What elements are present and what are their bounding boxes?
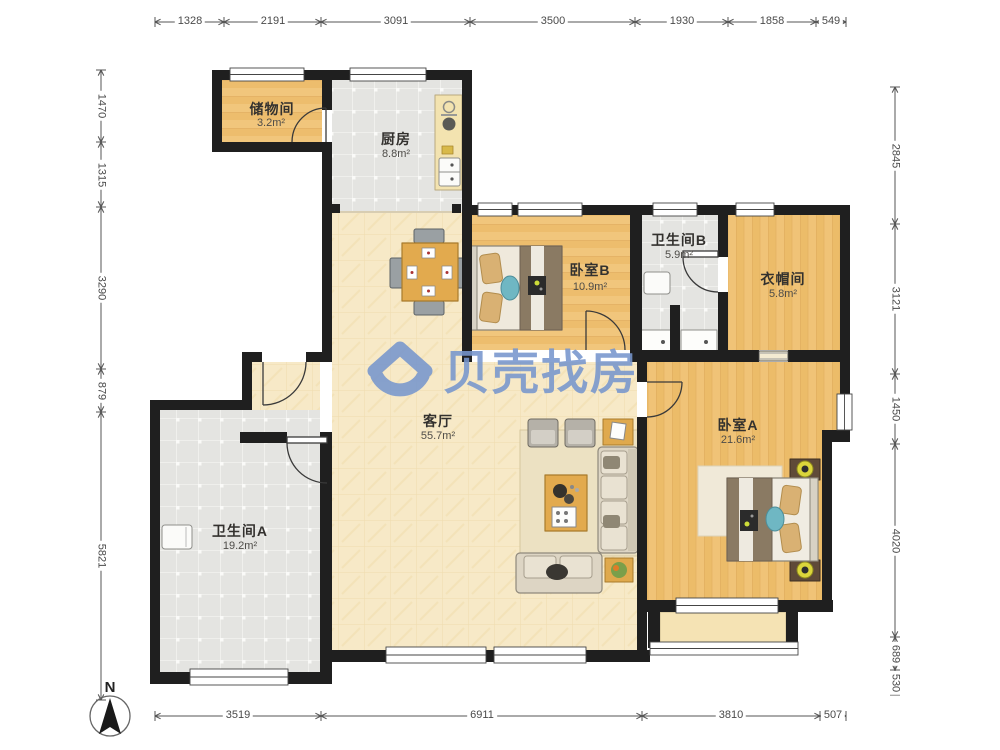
window-bedroom-a-bottom [676, 598, 778, 613]
dim-left-5: 5821 [95, 541, 108, 571]
room-area-kitchen: 8.8m² [382, 148, 410, 160]
dimension-line-right [890, 87, 900, 695]
dim-top-7: 549 [819, 15, 843, 28]
sofa-cushion [603, 456, 620, 469]
bathroom-a-sink [162, 525, 192, 549]
north-arrow [90, 696, 130, 736]
dining-chair [414, 229, 444, 243]
dim-right-1: 2845 [889, 141, 902, 171]
room-label-cloakroom: 衣帽间 [761, 269, 806, 289]
round-pillow [766, 507, 784, 531]
north-label: N [105, 679, 116, 696]
window-bedroom-a-east [837, 394, 852, 430]
coffee-table [545, 475, 587, 531]
bed-tray [740, 510, 758, 531]
dim-right-4: 4020 [889, 526, 902, 556]
room-area-bathroom-b: 5.9m² [665, 249, 693, 261]
pillow [479, 292, 503, 324]
living-room-set [516, 419, 640, 593]
dim-left-3: 3290 [95, 273, 108, 303]
dim-top-1: 1328 [175, 15, 205, 28]
threshold-cloakroom-bedroom-a [759, 351, 788, 361]
dim-bottom-1: 3519 [223, 709, 253, 722]
pillow [779, 485, 802, 515]
window-cloakroom-top [736, 203, 774, 216]
pillow [779, 523, 802, 553]
window-kitchen-top [350, 68, 426, 81]
room-area-bathroom-a: 19.2m² [223, 540, 257, 552]
room-area-storage: 3.2m² [257, 117, 285, 129]
dim-top-3: 3091 [381, 15, 411, 28]
dim-top-6: 1858 [757, 15, 787, 28]
window-bay-bottom [650, 642, 798, 655]
window-bathroom-b-top [653, 203, 697, 216]
window-bedroom-b-top-1 [478, 203, 512, 216]
throw-pillow [546, 564, 568, 580]
room-area-living: 55.7m² [421, 430, 455, 442]
sofa [598, 447, 638, 553]
floorplan-page: 贝壳找房 储物间 3.2m² 厨房 8.8m² 卧室B 10.9m² 卫生间B … [0, 0, 1000, 750]
dim-bottom-2: 6911 [467, 709, 497, 722]
window-living-bottom-1 [386, 647, 486, 663]
plant-table [605, 558, 633, 582]
dim-right-5: 689 [889, 642, 902, 666]
dining-chair [414, 301, 444, 315]
room-label-living: 客厅 [423, 411, 453, 431]
watermark-brand: 贝壳找房 [443, 343, 639, 403]
room-area-bedroom-b: 10.9m² [573, 281, 607, 293]
room-area-cloakroom: 5.8m² [769, 288, 797, 300]
kitchen-counter [435, 95, 462, 190]
window-storage-top [230, 68, 304, 81]
dim-top-5: 1930 [667, 15, 697, 28]
dim-right-3: 1450 [889, 394, 902, 424]
room-label-storage: 储物间 [250, 99, 295, 119]
plant-icon [611, 562, 627, 578]
dim-left-2: 1315 [95, 160, 108, 190]
room-label-kitchen: 厨房 [381, 129, 411, 149]
loveseat [516, 553, 602, 593]
window-bathroom-a-bottom [190, 669, 288, 685]
bay-window-floor [660, 612, 786, 644]
dim-right-2: 3121 [889, 284, 902, 314]
room-label-bathroom-b: 卫生间B [651, 230, 707, 250]
sofa-cushion [603, 515, 620, 528]
dim-bottom-3: 3810 [716, 709, 746, 722]
window-living-bottom-2 [494, 647, 586, 663]
round-pillow [501, 276, 519, 300]
pillow [479, 253, 503, 285]
room-label-bedroom-a: 卧室A [717, 415, 758, 435]
window-bedroom-b-top-2 [518, 203, 582, 216]
north-arrow-needle [99, 698, 121, 734]
dim-bottom-4: 507 [821, 709, 845, 722]
dim-top-2: 2191 [258, 15, 288, 28]
bathroom-b-sink [644, 272, 670, 294]
book [610, 422, 626, 440]
kitchen-item [442, 146, 453, 154]
stove-burner-icon [443, 118, 456, 131]
room-area-bedroom-a: 21.6m² [721, 434, 755, 446]
dim-right-6: 530 [889, 671, 902, 695]
room-label-bathroom-a: 卫生间A [212, 521, 268, 541]
dim-left-1: 1470 [95, 91, 108, 121]
room-label-bedroom-b: 卧室B [569, 260, 610, 280]
bed-bedroom-b [468, 246, 562, 330]
dim-left-4: 879 [95, 379, 108, 403]
dim-top-4: 3500 [538, 15, 568, 28]
